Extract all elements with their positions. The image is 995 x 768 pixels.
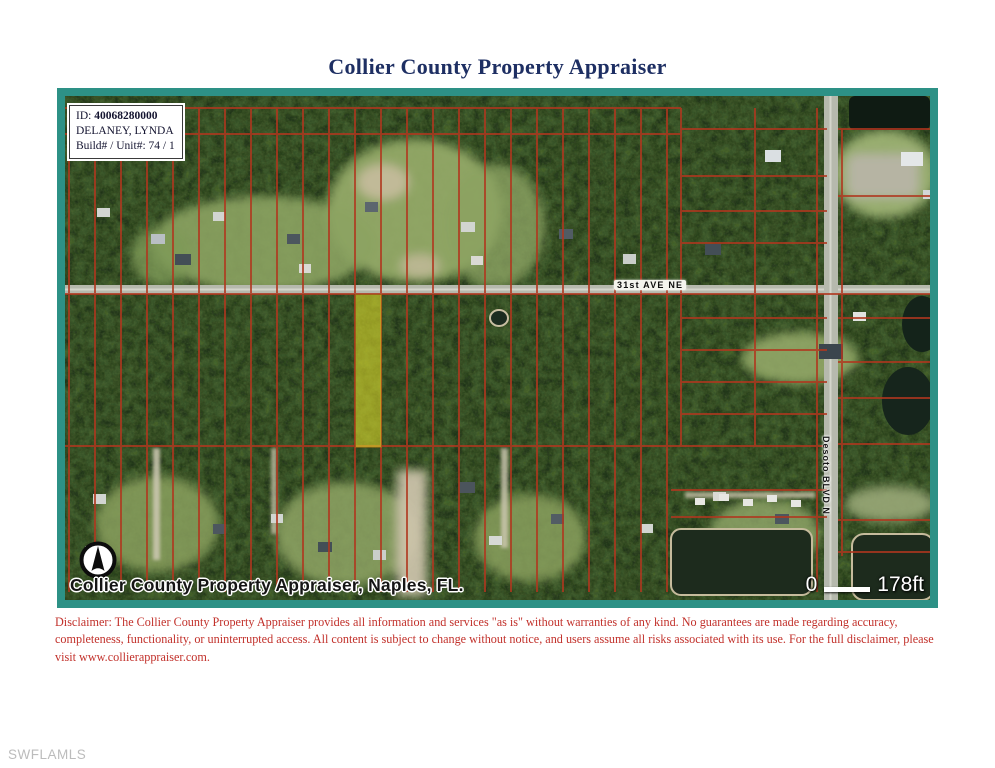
watermark-swflamls: SWFLAMLS — [8, 747, 86, 762]
north-arrow-icon — [78, 540, 118, 580]
disclaimer-text: Disclaimer: The Collier County Property … — [55, 614, 943, 666]
scale-zero: 0 — [806, 573, 818, 597]
aerial-imagery — [65, 96, 930, 600]
parcel-info-box: ID: 40068280000 DELANEY, LYNDA Build# / … — [69, 105, 183, 159]
parcel-owner: DELANEY, LYNDA — [76, 124, 175, 139]
street-label-31st-ave-ne: 31st AVE NE — [614, 280, 686, 290]
scale-distance: 178ft — [877, 573, 924, 597]
scale-bar-line — [824, 587, 870, 592]
parcel-id-value: 40068280000 — [94, 110, 157, 122]
aerial-map[interactable]: ID: 40068280000 DELANEY, LYNDA Build# / … — [65, 96, 930, 600]
parcel-id-label: ID: — [76, 110, 91, 122]
page-title: Collier County Property Appraiser — [0, 54, 995, 80]
highlighted-parcel — [356, 295, 381, 447]
pond-top-right — [849, 96, 930, 130]
map-credit: Collier County Property Appraiser, Naple… — [70, 575, 464, 596]
lake-bottom-west — [671, 529, 812, 595]
street-label-desoto-blvd-n: Desoto BLVD N — [821, 436, 831, 515]
pond-small — [490, 310, 508, 326]
parcel-build-unit: Build# / Unit#: 74 / 1 — [76, 139, 175, 154]
map-frame: ID: 40068280000 DELANEY, LYNDA Build# / … — [57, 88, 938, 608]
parcel-id-line: ID: 40068280000 — [76, 109, 175, 124]
scale-bar: 0178ft — [806, 573, 924, 597]
